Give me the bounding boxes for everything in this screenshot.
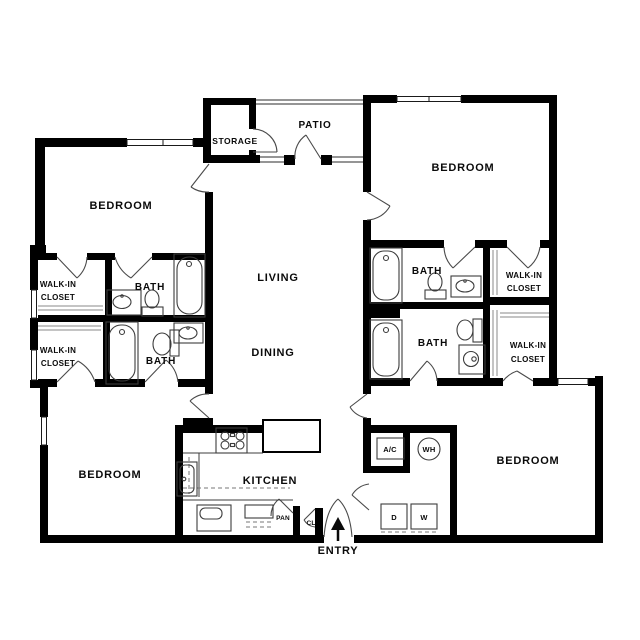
entry-arrow-icon: [331, 517, 345, 541]
patio-post: [284, 155, 295, 165]
wall-segment: [363, 466, 410, 473]
door-swing-laundry: [352, 484, 369, 510]
wall-segment: [203, 98, 211, 163]
door-swing-bath-upper-left: [115, 257, 152, 278]
window: [30, 290, 38, 318]
wall-segment: [490, 297, 557, 305]
wall-segment: [315, 508, 323, 535]
wall-segment: [35, 138, 45, 252]
walkin-closet-lower-left-label-line1: WALK-IN: [40, 346, 76, 355]
wall-segment: [475, 240, 507, 248]
bedroom-bottom-left-label: BEDROOM: [78, 469, 141, 481]
storage-label: STORAGE: [212, 136, 257, 146]
dishwasher: [197, 505, 231, 531]
closet-shelf: [38, 326, 101, 330]
wall-segment: [368, 240, 444, 248]
wall-segment: [30, 245, 46, 253]
window: [40, 417, 48, 445]
bath-upper-right-label: BATH: [412, 266, 442, 277]
wall-segment: [105, 253, 112, 317]
toilet: [457, 319, 482, 342]
wall-segment: [205, 192, 213, 394]
wall-segment: [30, 253, 57, 260]
wall-segment: [175, 425, 183, 543]
bath-upper-left-label: BATH: [135, 282, 165, 293]
wall-segment: [437, 378, 503, 386]
window: [397, 95, 461, 103]
kitchen-label: KITCHEN: [243, 475, 298, 487]
bath-lower-left-label: BATH: [146, 356, 176, 367]
wall-segment: [203, 155, 260, 163]
washer-label: W: [420, 513, 428, 522]
wall-segment: [363, 425, 457, 433]
door-swing-bedroom-bottom-right: [350, 394, 367, 418]
bedroom-top-left-label: BEDROOM: [89, 200, 152, 212]
walkin-closet-lower-right-label-line2: CLOSET: [511, 355, 545, 364]
wall-segment: [450, 425, 457, 543]
wall-segment: [40, 445, 48, 543]
wall-segment: [293, 506, 300, 535]
sink: [451, 276, 481, 297]
wall-segment: [588, 378, 603, 386]
living-label: LIVING: [257, 272, 298, 284]
wall-segment: [483, 302, 490, 386]
walkin-closet-upper-right-label-line2: CLOSET: [507, 284, 541, 293]
bedroom-top-right-label: BEDROOM: [431, 162, 494, 174]
door-swing-closet-upper-right: [507, 247, 540, 268]
wall-segment: [549, 95, 557, 383]
wall-segment: [595, 376, 603, 543]
wall-segment: [400, 302, 490, 309]
walkin-closet-upper-left-label-line2: CLOSET: [41, 293, 75, 302]
door-swing-bath-upper-right: [444, 247, 475, 268]
door-swing-bath-lower-right: [410, 361, 437, 381]
refrigerator: [245, 505, 273, 518]
fixtures: [38, 248, 549, 541]
door-swing-bedroom-top-right: [367, 192, 390, 220]
walkin-closet-upper-right-label-line1: WALK-IN: [506, 271, 542, 280]
wall-segment: [249, 98, 256, 129]
wall-segment: [533, 378, 558, 386]
bath-lower-right-label: BATH: [418, 338, 448, 349]
bathtub: [174, 254, 205, 317]
wall-segment: [483, 240, 490, 304]
bathtub: [370, 320, 402, 379]
ac-label: A/C: [383, 445, 397, 454]
patio-post: [321, 155, 332, 165]
door-swing-patio: [295, 135, 321, 159]
window: [558, 377, 588, 386]
patio-rails: [256, 100, 363, 162]
coat-closet-label: CL: [306, 520, 315, 527]
wall-segment: [175, 425, 267, 433]
floor-plan-page: STORAGE PATIO BEDROOM BEDROOM LIVING DIN…: [0, 0, 640, 640]
floor-plan: STORAGE PATIO BEDROOM BEDROOM LIVING DIN…: [0, 0, 640, 640]
walkin-closet-lower-right-label-line1: WALK-IN: [510, 341, 546, 350]
toilet: [142, 290, 163, 316]
windows: [30, 95, 588, 445]
door-swing-pantry: [271, 499, 293, 516]
door-swing-closet-upper-left: [57, 257, 87, 278]
wall-segment: [35, 138, 127, 147]
pantry-label: PAN: [276, 515, 290, 522]
patio-rail: [260, 157, 284, 162]
walkin-closet-lower-left-label-line2: CLOSET: [41, 359, 75, 368]
bathtub: [106, 322, 138, 384]
chase-block: [365, 302, 400, 318]
closet-shelf: [38, 306, 103, 310]
wall-segment: [183, 418, 212, 426]
dining-label: DINING: [251, 347, 294, 359]
door-swing-closet-lower-right: [503, 371, 533, 381]
closet-shelf: [493, 250, 497, 295]
sink: [107, 290, 141, 315]
wall-segment: [540, 240, 557, 248]
wall-segment: [30, 318, 38, 350]
wall-segment: [203, 98, 256, 105]
dryer-label: D: [391, 513, 397, 522]
wall-segment: [354, 535, 603, 543]
wall-segment: [40, 386, 48, 417]
bathtub: [370, 248, 402, 303]
water-heater-label: WH: [423, 445, 436, 454]
window: [30, 350, 38, 380]
wall-segment: [178, 379, 213, 387]
patio-label: PATIO: [298, 120, 331, 131]
sink: [459, 345, 485, 374]
wall-segment: [30, 315, 213, 322]
patio-rail: [332, 157, 363, 162]
walkin-closet-upper-left-label-line1: WALK-IN: [40, 280, 76, 289]
door-swing-bedroom-bottom-left: [190, 394, 209, 418]
wall-segment: [363, 95, 371, 192]
door-swing-bedroom-top-left: [191, 164, 209, 192]
sink: [174, 323, 203, 343]
kitchen-counter-peninsula: [263, 420, 320, 452]
patio-rail: [256, 100, 363, 104]
wall-segment: [461, 95, 557, 103]
entry-label: ENTRY: [318, 545, 359, 557]
bedroom-bottom-right-label: BEDROOM: [496, 455, 559, 467]
window: [127, 138, 193, 147]
